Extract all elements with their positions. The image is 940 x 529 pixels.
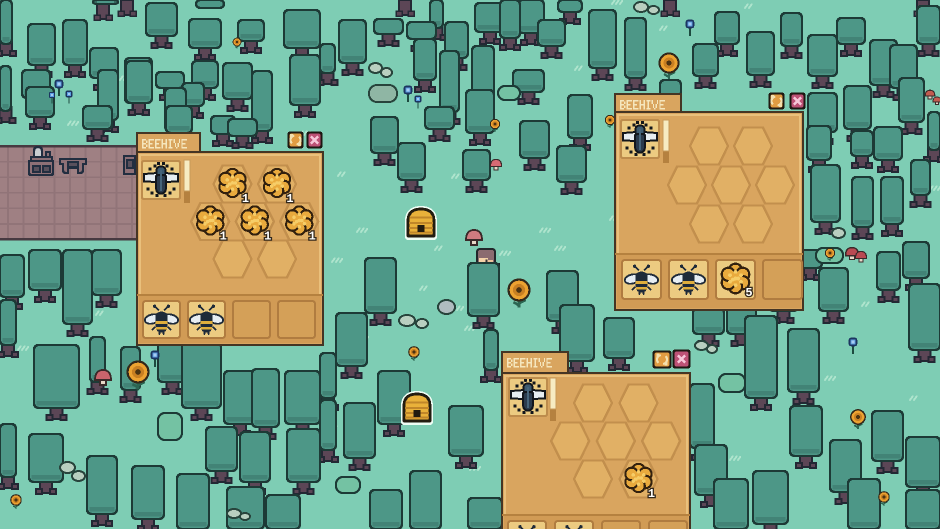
svg-text:1: 1: [309, 230, 316, 244]
svg-text:1: 1: [220, 230, 227, 244]
svg-text:1: 1: [648, 487, 655, 501]
svg-text:1: 1: [286, 192, 293, 206]
svg-text:1: 1: [242, 192, 249, 206]
svg-text:5: 5: [745, 286, 752, 300]
svg-text:1: 1: [264, 230, 271, 244]
